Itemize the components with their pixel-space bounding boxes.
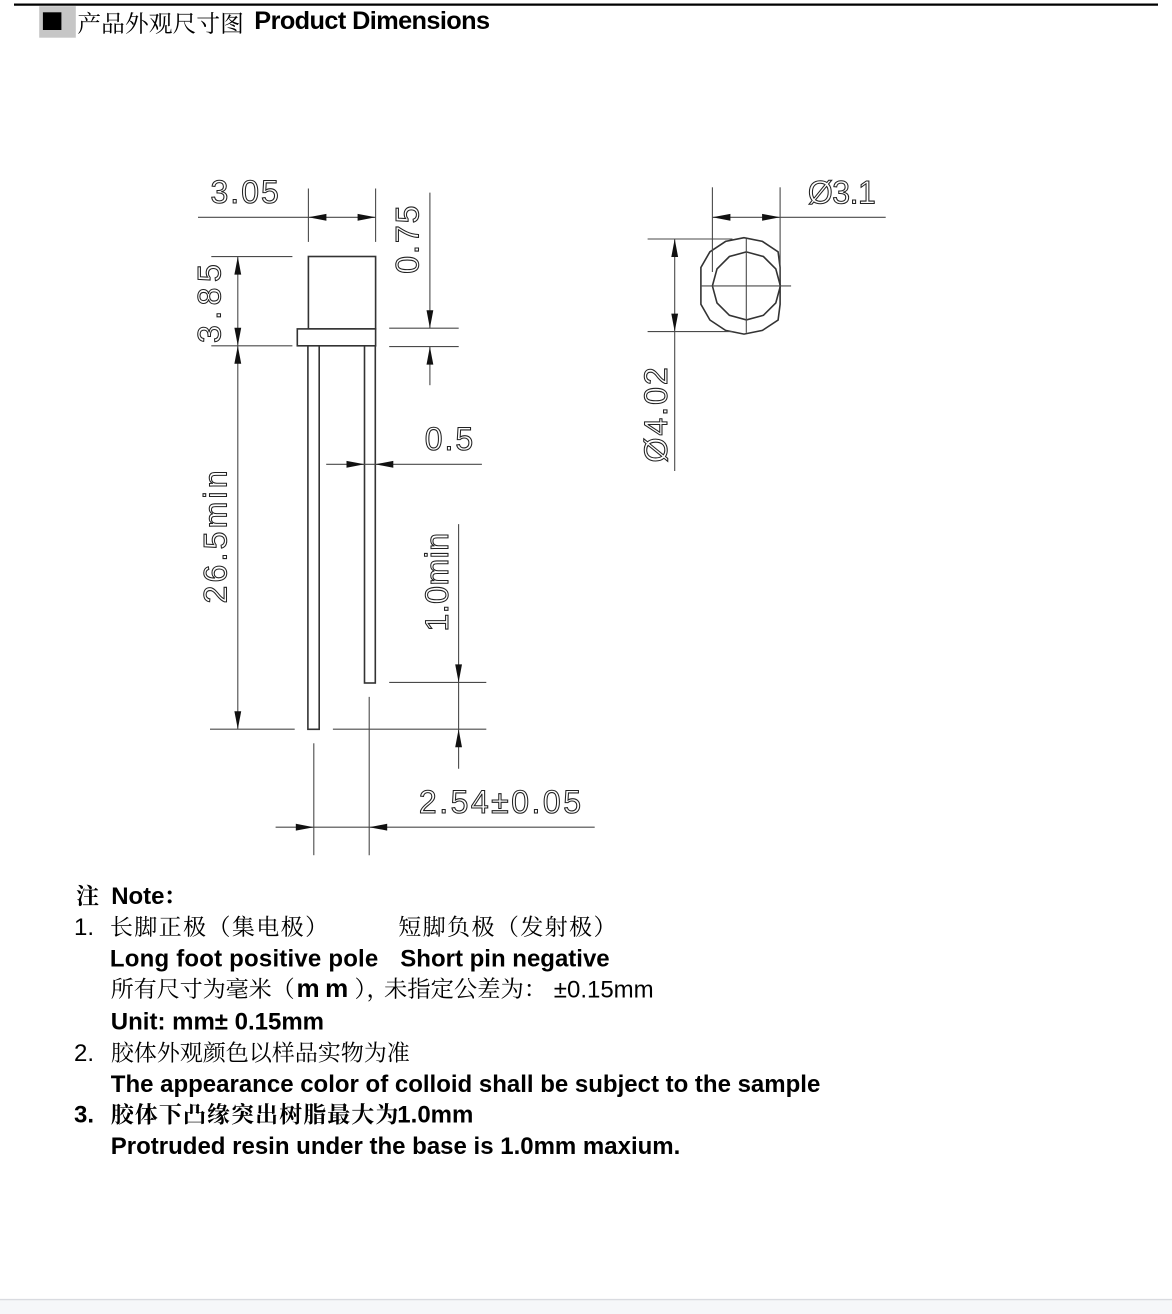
svg-text:2.: 2. xyxy=(74,1040,94,1067)
svg-text:26.5min: 26.5min xyxy=(197,467,233,603)
svg-text:1.: 1. xyxy=(74,914,94,941)
svg-text:0.5: 0.5 xyxy=(425,421,475,457)
svg-text:0.75: 0.75 xyxy=(390,204,426,274)
svg-text:mm: mm xyxy=(297,973,354,1003)
svg-text:1.0min: 1.0min xyxy=(419,532,455,631)
svg-text:±0.15mm: ±0.15mm xyxy=(554,977,654,1004)
svg-text:Ø4.02: Ø4.02 xyxy=(638,365,674,462)
svg-text:1.0mm: 1.0mm xyxy=(397,1102,473,1129)
svg-text:2.54±0.05: 2.54±0.05 xyxy=(419,784,584,820)
svg-text:Note: Note xyxy=(111,883,164,910)
svg-text:Short pin negative: Short pin negative xyxy=(400,945,609,972)
svg-text:3.: 3. xyxy=(74,1102,94,1129)
svg-text:3.85: 3.85 xyxy=(192,259,228,343)
svg-text:Long foot positive pole: Long foot positive pole xyxy=(110,945,379,972)
svg-text:3.05: 3.05 xyxy=(211,174,281,210)
svg-text:Product Dimensions: Product Dimensions xyxy=(254,7,490,35)
svg-text:The appearance color of colloi: The appearance color of colloid shall be… xyxy=(111,1071,821,1098)
svg-text:Unit: mm± 0.15mm: Unit: mm± 0.15mm xyxy=(111,1008,324,1035)
svg-text:Ø3.1: Ø3.1 xyxy=(808,175,875,211)
svg-text:Protruded resin under the base: Protruded resin under the base is 1.0mm … xyxy=(111,1133,681,1160)
